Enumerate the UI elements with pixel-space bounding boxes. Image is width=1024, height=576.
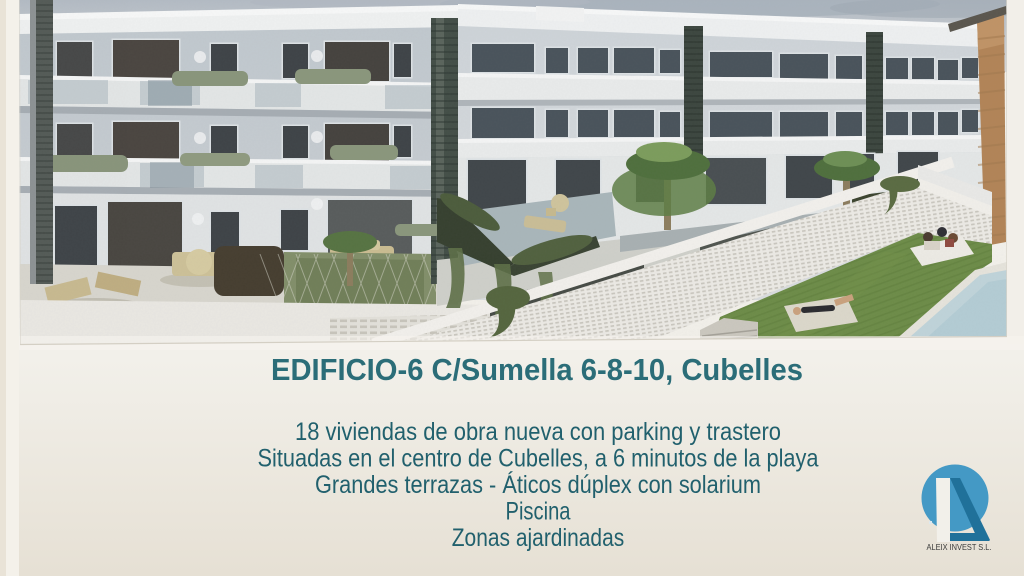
svg-text:EDIFICIO-6 C/Sumella 6-8-10, C: EDIFICIO-6 C/Sumella 6-8-10, Cubelles <box>271 352 803 387</box>
svg-text:Grandes terrazas - Áticos dúpl: Grandes terrazas - Áticos dúplex con sol… <box>315 470 761 499</box>
svg-text:Piscina: Piscina <box>506 498 571 526</box>
svg-text:18 viviendas de obra nueva con: 18 viviendas de obra nueva con parking y… <box>295 418 781 446</box>
svg-text:Zonas ajardinadas: Zonas ajardinadas <box>452 524 625 552</box>
svg-text:Situadas en el centro de Cubel: Situadas en el centro de Cubelles, a 6 m… <box>258 445 819 473</box>
svg-text:ALEIX INVEST S.L.: ALEIX INVEST S.L. <box>927 543 992 552</box>
